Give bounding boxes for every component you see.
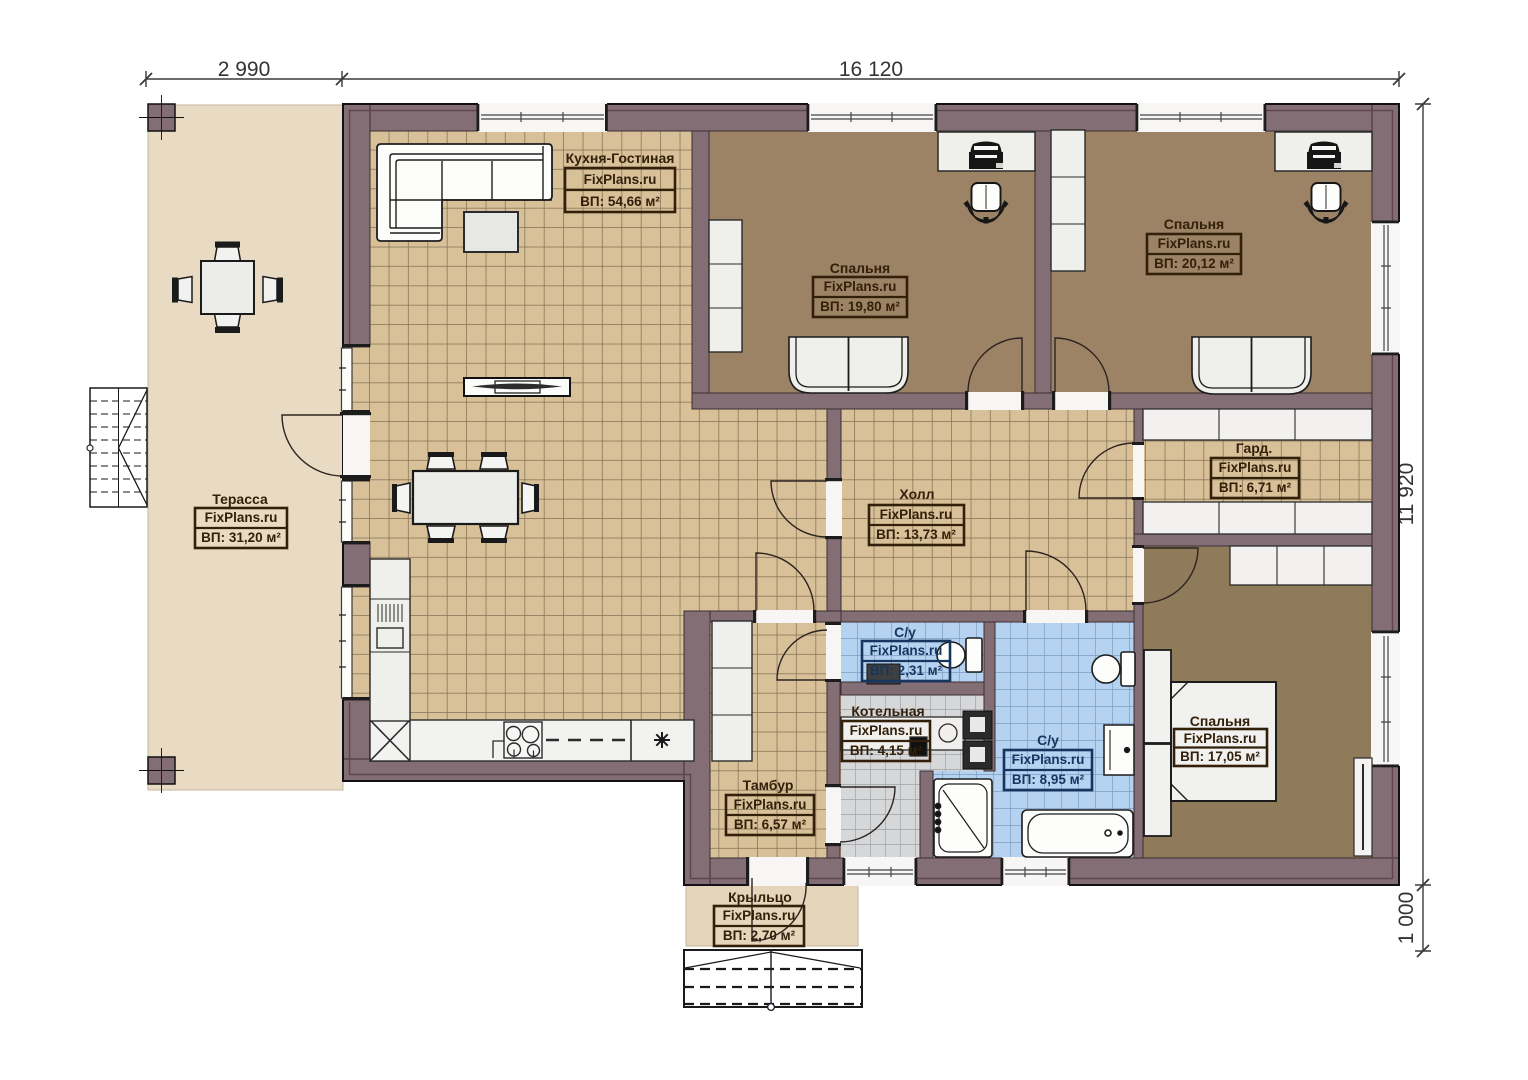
- svg-text:FixPlans.ru: FixPlans.ru: [734, 797, 807, 812]
- svg-text:ВП: 31,20 м²: ВП: 31,20 м²: [201, 530, 281, 545]
- svg-text:С/у: С/у: [894, 624, 916, 640]
- svg-text:FixPlans.ru: FixPlans.ru: [1219, 460, 1292, 475]
- svg-text:Холл: Холл: [899, 486, 934, 502]
- svg-text:Тамбур: Тамбур: [743, 777, 794, 793]
- svg-text:ВП: 8,95 м²: ВП: 8,95 м²: [1012, 772, 1085, 787]
- svg-text:ВП: 4,15 м²: ВП: 4,15 м²: [850, 743, 923, 758]
- svg-text:Спальня: Спальня: [830, 260, 890, 276]
- svg-text:FixPlans.ru: FixPlans.ru: [723, 908, 796, 923]
- svg-text:FixPlans.ru: FixPlans.ru: [824, 279, 897, 294]
- svg-text:1 000: 1 000: [1395, 892, 1418, 945]
- svg-text:FixPlans.ru: FixPlans.ru: [850, 723, 923, 738]
- svg-text:ВП: 17,05 м²: ВП: 17,05 м²: [1180, 749, 1260, 764]
- svg-text:ВП: 2,31 м²: ВП: 2,31 м²: [870, 663, 943, 678]
- svg-text:Спальня: Спальня: [1190, 713, 1250, 729]
- svg-text:Терасса: Терасса: [212, 491, 268, 507]
- svg-text:С/у: С/у: [1037, 732, 1059, 748]
- svg-text:ВП: 20,12 м²: ВП: 20,12 м²: [1154, 256, 1234, 271]
- svg-text:Котельная: Котельная: [851, 703, 924, 719]
- svg-text:FixPlans.ru: FixPlans.ru: [870, 643, 943, 658]
- svg-text:ВП: 2,70 м²: ВП: 2,70 м²: [723, 928, 796, 943]
- svg-text:FixPlans.ru: FixPlans.ru: [584, 172, 657, 187]
- svg-text:2 990: 2 990: [218, 58, 271, 81]
- svg-text:FixPlans.ru: FixPlans.ru: [1184, 731, 1257, 746]
- svg-text:ВП: 19,80 м²: ВП: 19,80 м²: [820, 299, 900, 314]
- svg-text:FixPlans.ru: FixPlans.ru: [205, 510, 278, 525]
- svg-text:FixPlans.ru: FixPlans.ru: [1158, 236, 1231, 251]
- svg-text:Спальня: Спальня: [1164, 216, 1224, 232]
- svg-text:16 120: 16 120: [839, 58, 903, 81]
- svg-text:ВП: 6,57 м²: ВП: 6,57 м²: [734, 817, 807, 832]
- svg-text:FixPlans.ru: FixPlans.ru: [880, 507, 953, 522]
- svg-text:FixPlans.ru: FixPlans.ru: [1012, 752, 1085, 767]
- svg-text:Крыльцо: Крыльцо: [728, 889, 792, 905]
- svg-text:ВП: 13,73 м²: ВП: 13,73 м²: [876, 527, 956, 542]
- svg-text:Гард.: Гард.: [1236, 440, 1273, 456]
- svg-text:Кухня-Гостиная: Кухня-Гостиная: [566, 150, 675, 166]
- svg-text:ВП: 6,71 м²: ВП: 6,71 м²: [1219, 480, 1292, 495]
- svg-text:ВП: 54,66 м²: ВП: 54,66 м²: [580, 194, 660, 209]
